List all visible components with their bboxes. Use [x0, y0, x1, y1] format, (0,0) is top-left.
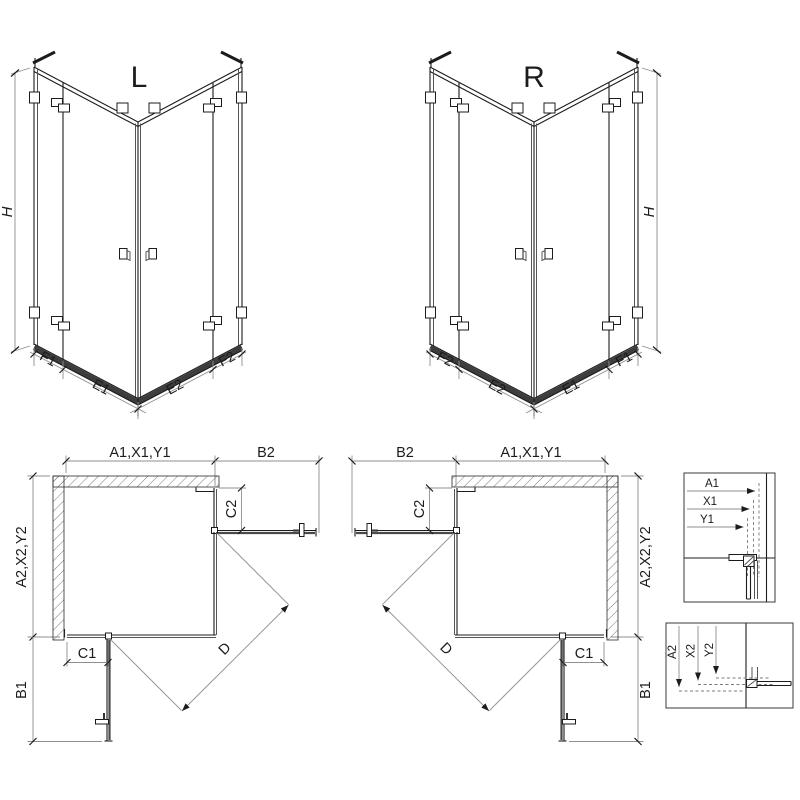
iso-right-title: R [523, 61, 545, 94]
wall-cap-right [221, 52, 243, 63]
iso-left-h-label: H [0, 206, 16, 217]
plan-right-a1-label: A1,X1,Y1 [500, 445, 561, 461]
plan-view-figure-mirrored [349, 456, 644, 746]
door-handle [96, 720, 109, 725]
detail-bottom-a2-label: A2 [667, 645, 679, 659]
hinge-clamps [52, 99, 222, 331]
door-handle [300, 524, 305, 537]
plan-left-b1-label: B1 [14, 681, 30, 699]
plan-left-c1-label: C1 [78, 646, 97, 662]
wall-hatch-bands [53, 476, 618, 640]
iso-left-title: L [131, 61, 148, 94]
plan-view-figure [28, 456, 323, 746]
door-pivot [106, 633, 112, 639]
b2-dimension [215, 456, 323, 534]
detail-box-top: A1 X1 Y1 [684, 473, 775, 602]
diagonal-dimension [182, 605, 289, 711]
detail-top-x1-label: X1 [703, 496, 717, 508]
profile-cross-section [747, 667, 792, 688]
corner-clamp [149, 103, 160, 113]
door-open-45 [218, 534, 289, 605]
detail-bottom-x2-label: X2 [686, 644, 698, 658]
plan-right-c2-label: C2 [412, 500, 428, 519]
technical-drawing-page: L H F1 E1 E2 F2 R H F2 E2 E1 F1 [0, 0, 800, 800]
detail-box-bottom: A2 X2 Y2 [666, 623, 793, 708]
detail-top-a1-label: A1 [705, 478, 719, 490]
corner-clamp [117, 103, 128, 113]
plan-right-c1-label: C1 [575, 646, 594, 662]
plan-left-d-label: D [216, 640, 235, 659]
plan-left-b2-label: B2 [257, 445, 275, 461]
profile-cross-section [729, 555, 758, 600]
plan-left-a2-label: A2,X2,Y2 [14, 526, 30, 587]
plan-right-b1-label: B1 [638, 681, 654, 699]
plan-left-c2-label: C2 [224, 500, 240, 519]
plan-right-a2-label: A2,X2,Y2 [638, 526, 654, 587]
plan-right-d-label: D [436, 640, 455, 659]
iso-right-h-label: H [641, 206, 658, 217]
wall-cap-left [33, 52, 55, 63]
door-open-45 [111, 640, 182, 711]
plan-right-b2-label: B2 [396, 445, 414, 461]
detail-bottom-y2-label: Y2 [704, 643, 716, 657]
shower-enclosure-diagram: L H F1 E1 E2 F2 R H F2 E2 E1 F1 [0, 0, 800, 800]
detail-top-y1-label: Y1 [700, 514, 714, 526]
plan-left-a1-label: A1,X1,Y1 [109, 445, 170, 461]
